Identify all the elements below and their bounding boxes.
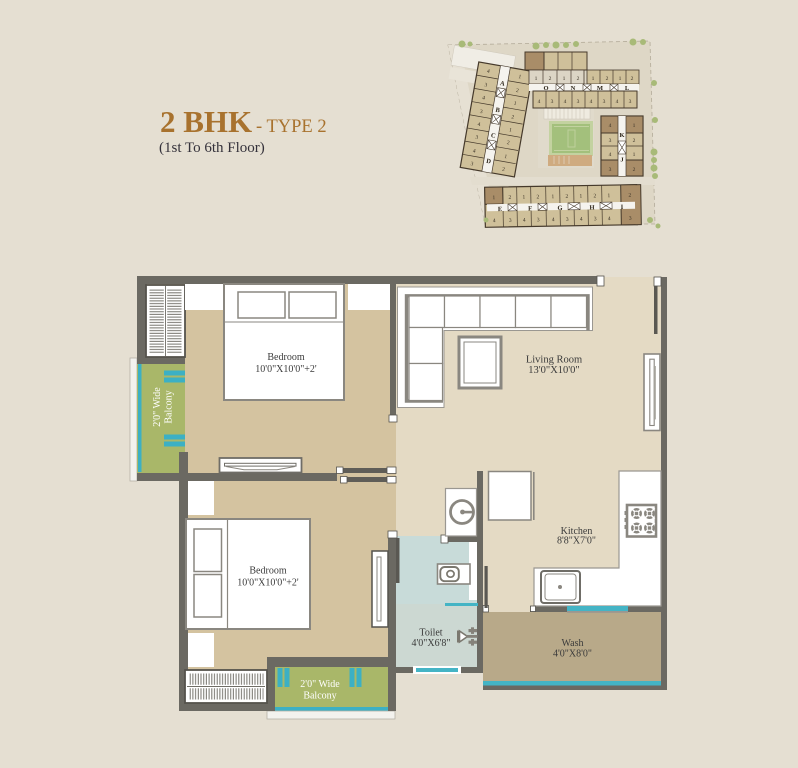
svg-text:4: 4 (609, 123, 612, 129)
svg-text:2'0" Wide: 2'0" Wide (300, 679, 340, 690)
svg-text:Living Room: Living Room (526, 355, 582, 366)
svg-text:4: 4 (590, 99, 593, 105)
svg-text:K: K (619, 132, 624, 139)
svg-text:M: M (597, 85, 603, 92)
svg-text:1: 1 (633, 123, 636, 129)
svg-text:3: 3 (609, 138, 612, 144)
svg-text:2: 2 (536, 194, 539, 200)
svg-text:3: 3 (551, 99, 554, 105)
svg-text:2: 2 (628, 193, 631, 199)
svg-text:3: 3 (537, 217, 540, 223)
svg-text:4: 4 (609, 152, 612, 158)
svg-text:1: 1 (619, 76, 622, 82)
svg-text:(1st To 6th Floor): (1st To 6th Floor) (159, 140, 265, 156)
svg-text:Balcony: Balcony (303, 691, 336, 702)
svg-text:1: 1 (492, 195, 495, 201)
svg-text:4: 4 (493, 218, 496, 224)
svg-text:2: 2 (593, 193, 596, 199)
svg-text:1: 1 (592, 76, 595, 82)
svg-text:3: 3 (629, 216, 632, 222)
svg-text:1: 1 (633, 152, 636, 158)
svg-text:2: 2 (633, 167, 636, 173)
svg-text:3: 3 (609, 167, 612, 173)
svg-text:4: 4 (552, 217, 555, 223)
svg-text:4: 4 (580, 217, 583, 223)
svg-text:1: 1 (579, 194, 582, 200)
svg-text:2: 2 (631, 76, 634, 82)
svg-text:10'0"X10'0"+2': 10'0"X10'0"+2' (237, 578, 299, 589)
svg-text:1: 1 (535, 76, 538, 82)
svg-text:E: E (498, 206, 502, 213)
svg-text:3: 3 (629, 99, 632, 105)
svg-text:Wash: Wash (562, 638, 584, 649)
svg-text:1: 1 (522, 195, 525, 201)
svg-text:3: 3 (566, 217, 569, 223)
svg-text:4: 4 (538, 99, 541, 105)
svg-text:2: 2 (577, 76, 580, 82)
svg-text:1: 1 (563, 76, 566, 82)
svg-text:O: O (543, 85, 548, 92)
svg-text:G: G (557, 205, 562, 212)
svg-text:H: H (589, 204, 594, 211)
svg-text:2: 2 (549, 76, 552, 82)
svg-text:Balcony: Balcony (164, 390, 175, 423)
svg-text:F: F (528, 205, 532, 212)
svg-text:- TYPE 2: - TYPE 2 (256, 117, 327, 137)
svg-text:Toilet: Toilet (419, 628, 442, 639)
svg-text:2'0" Wide: 2'0" Wide (152, 387, 163, 427)
svg-text:10'0"X10'0"+2': 10'0"X10'0"+2' (255, 364, 317, 375)
svg-text:3: 3 (509, 218, 512, 224)
svg-text:4'0"X6'8": 4'0"X6'8" (412, 638, 451, 649)
svg-text:L: L (625, 85, 630, 92)
svg-text:13'0"X10'0": 13'0"X10'0" (528, 365, 579, 376)
svg-text:Bedroom: Bedroom (267, 352, 304, 363)
svg-text:2 BHK: 2 BHK (160, 104, 252, 139)
svg-text:3: 3 (603, 99, 606, 105)
svg-text:4: 4 (523, 218, 526, 224)
svg-text:4: 4 (564, 99, 567, 105)
svg-text:1: 1 (551, 194, 554, 200)
svg-text:2: 2 (565, 194, 568, 200)
svg-text:2: 2 (606, 76, 609, 82)
svg-text:4: 4 (608, 216, 611, 222)
svg-text:8'8"X7'0": 8'8"X7'0" (557, 536, 596, 547)
svg-text:4'0"X8'0": 4'0"X8'0" (553, 649, 592, 660)
svg-text:Bedroom: Bedroom (249, 566, 286, 577)
svg-text:2: 2 (508, 195, 511, 201)
svg-text:4: 4 (616, 99, 619, 105)
svg-text:3: 3 (594, 216, 597, 222)
svg-text:3: 3 (577, 99, 580, 105)
svg-text:2: 2 (633, 138, 636, 144)
svg-text:N: N (571, 85, 576, 92)
svg-text:1: 1 (607, 193, 610, 199)
